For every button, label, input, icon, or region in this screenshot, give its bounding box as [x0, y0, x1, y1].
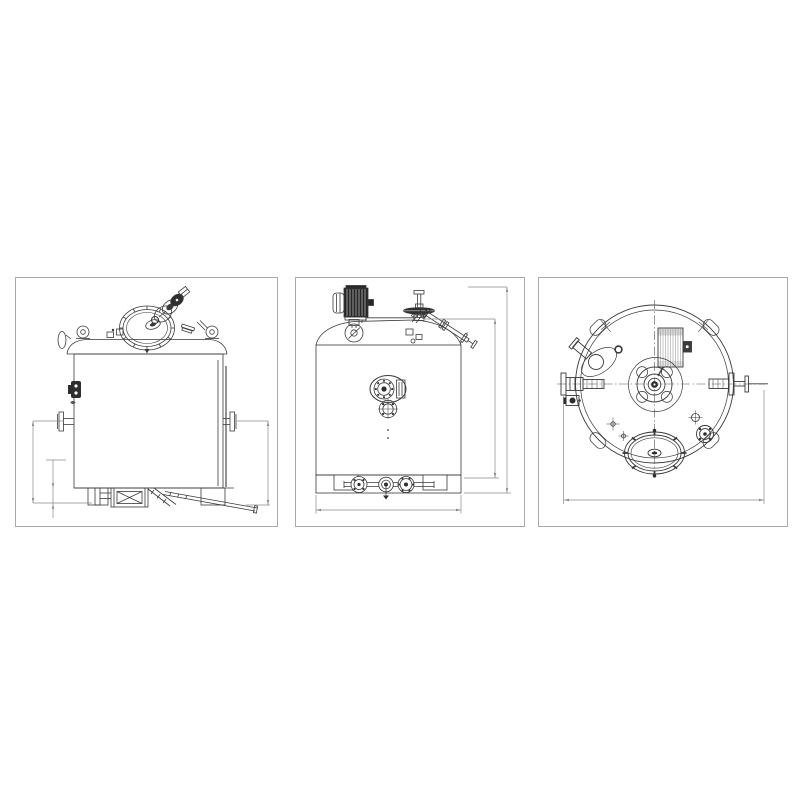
- panel-front-elevation: [295, 277, 525, 527]
- sample-flange: [378, 399, 398, 439]
- dimension-lines: [32, 421, 270, 518]
- front-elevation-drawing: [296, 278, 524, 526]
- tank-shell: [67, 340, 227, 489]
- panel-side-elevation: [15, 277, 278, 527]
- tank-shell: [316, 318, 461, 493]
- panel-top-plan: [538, 277, 788, 527]
- head-clamp-fitting: [345, 320, 363, 343]
- bolted-port: [697, 426, 714, 443]
- top-plan-drawing: [539, 278, 787, 526]
- manway-lid: [120, 306, 175, 354]
- side-clamp-port: [68, 381, 81, 404]
- center-hub-flange: [629, 358, 683, 412]
- right-nozzle: [709, 373, 768, 395]
- agitator-motor: [333, 286, 374, 325]
- side-nozzles: [58, 412, 237, 431]
- angled-nozzle: [569, 338, 622, 383]
- dimension-lines: [564, 390, 765, 504]
- side-elevation-drawing: [16, 278, 277, 526]
- bottom-pipework: [344, 477, 434, 500]
- sight-glass-assembly: [370, 376, 406, 403]
- agitator-shaft: [404, 291, 435, 321]
- base-assembly: [74, 488, 258, 513]
- drawing-canvas: [0, 0, 800, 800]
